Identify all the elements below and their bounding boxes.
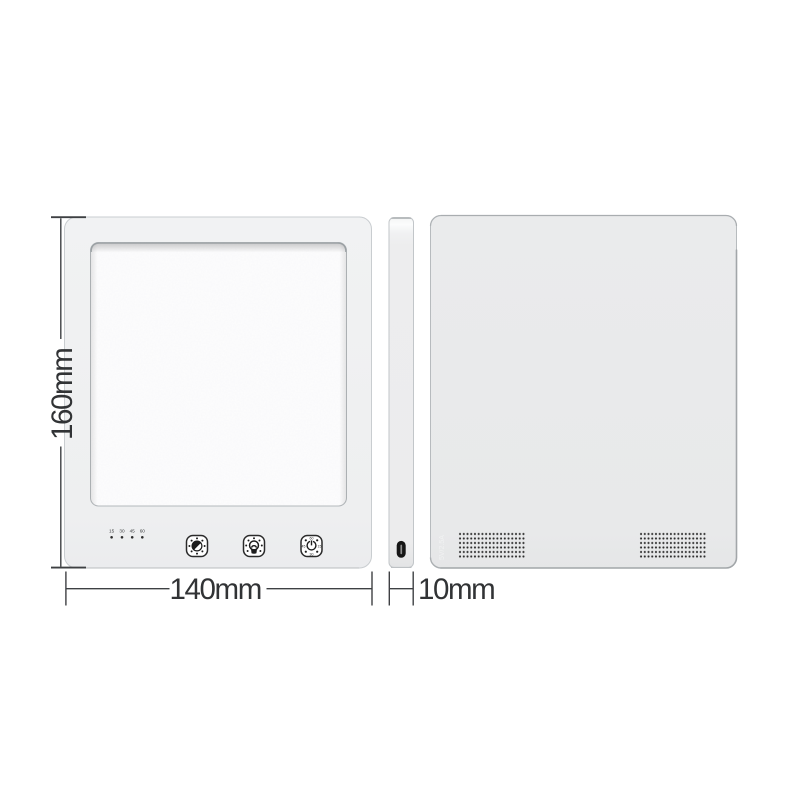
svg-text:140mm: 140mm [170,573,261,606]
svg-text:45: 45 [302,544,306,548]
svg-text:30: 30 [310,553,314,557]
svg-text:60: 60 [140,529,146,534]
svg-text:5V/2.5A: 5V/2.5A [439,535,446,560]
svg-text:10mm: 10mm [418,573,494,606]
svg-text:45: 45 [130,529,136,534]
svg-text:15: 15 [109,529,115,534]
svg-text:15: 15 [318,544,322,548]
svg-text:30: 30 [119,529,125,534]
svg-text:160mm: 160mm [46,349,79,440]
svg-text:60: 60 [310,536,314,540]
